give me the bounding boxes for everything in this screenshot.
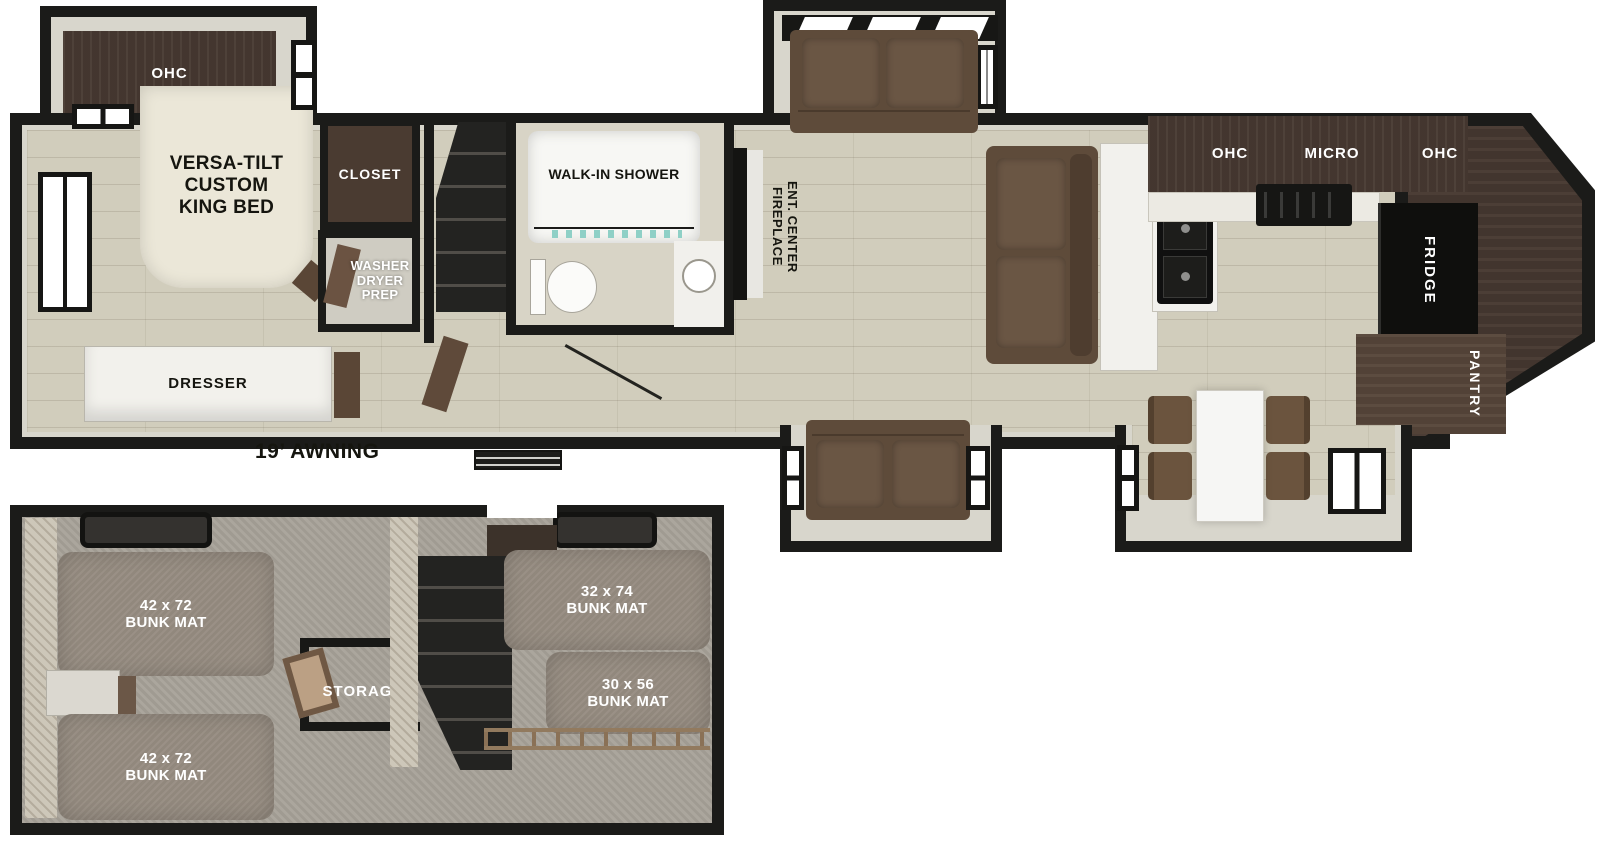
bunk-mat-top-left: 42 x 72 BUNK MAT — [58, 552, 274, 676]
kitchen-ohc-right-label: OHC — [1422, 145, 1458, 162]
sofa-cushion — [886, 38, 964, 108]
skylight — [553, 512, 657, 548]
bunk-mat-top-right-label: 32 x 74 BUNK MAT — [566, 583, 647, 618]
dinette-chair — [1266, 396, 1310, 444]
bath-sink — [682, 259, 716, 293]
sofa-cushion — [996, 256, 1066, 348]
pantry-label: PANTRY — [1467, 350, 1483, 418]
sofa-seat-seam — [798, 110, 970, 112]
sofa-bottom-slide — [806, 420, 970, 520]
sofa-cushion — [802, 38, 880, 108]
stove-grate — [1264, 192, 1344, 218]
awning-label-wrap: 19’ AWNING — [255, 440, 425, 466]
slideout-side-window — [976, 45, 998, 109]
closet-label: CLOSET — [339, 166, 402, 182]
dinette-chair — [1148, 396, 1192, 444]
toilet-bowl — [547, 261, 597, 313]
entry-steps — [474, 450, 562, 470]
bunk-nightstand-side — [118, 676, 136, 714]
shower-rod — [534, 227, 694, 229]
dinette-table — [1196, 390, 1264, 522]
sofa-cushion — [996, 158, 1066, 250]
dinette-chair — [1148, 452, 1192, 500]
king-bed-label: VERSA-TILT CUSTOM KING BED — [170, 153, 283, 219]
dresser-side-cabinet — [334, 352, 360, 418]
sofa-cushion — [816, 440, 884, 508]
awning-label: 19’ AWNING — [255, 440, 379, 463]
bottom-slide-left-window — [782, 446, 804, 510]
ent-center-fireplace — [733, 148, 747, 300]
closet: CLOSET — [320, 118, 420, 230]
sofa-cushion — [892, 440, 960, 508]
sink-drain — [1181, 224, 1190, 233]
washer-dryer-prep: WASHER DRYER PREP — [318, 230, 420, 332]
king-bed: VERSA-TILT CUSTOM KING BED — [140, 86, 313, 288]
bunk-stairwell-wall — [390, 517, 418, 767]
sofa-facing-left — [986, 146, 1098, 364]
toilet-tank — [530, 259, 546, 315]
bunk-top-wall-opening — [487, 505, 557, 518]
bunk-nightstand — [46, 670, 120, 716]
bedroom-top-window — [72, 104, 134, 129]
sink-drain — [1181, 272, 1190, 281]
bottom-slide-right-window — [966, 446, 990, 510]
bunk-mat-bottom-left: 42 x 72 BUNK MAT — [58, 714, 274, 820]
bunk-mat-top-left-label: 42 x 72 BUNK MAT — [125, 597, 206, 632]
bunk-ladder — [484, 728, 710, 750]
dresser: DRESSER — [84, 346, 332, 422]
bunk-mat-bottom-right: 30 x 56 BUNK MAT — [546, 652, 710, 734]
stove-cooktop — [1256, 184, 1352, 226]
shower-label: WALK-IN SHOWER — [549, 166, 680, 182]
skylight — [80, 512, 212, 548]
bedroom-ohc-label: OHC — [151, 65, 187, 82]
bedroom-slide-window — [291, 40, 317, 110]
sofa-top-slide — [790, 30, 978, 133]
fridge-label: FRIDGE — [1421, 236, 1438, 305]
ent-center-label: ENT. CENTER FIREPLACE — [769, 181, 799, 273]
kitchen-ohc-band: OHC MICRO OHC — [1148, 116, 1468, 192]
bedroom-wall — [424, 113, 434, 343]
sofa-seat-seam — [812, 434, 964, 436]
pantry: PANTRY — [1356, 334, 1506, 434]
dinette-left-window — [1117, 445, 1139, 511]
shower-curtain — [552, 230, 682, 238]
bunk-mat-top-right: 32 x 74 BUNK MAT — [504, 550, 710, 650]
rv-floorplan: OHC VERSA-TILT CUSTOM KING BED CLOSET WA… — [0, 0, 1600, 848]
bedroom-rear-window — [38, 172, 92, 312]
dinette-right-window — [1328, 448, 1386, 514]
kitchen-micro-label: MICRO — [1305, 145, 1360, 162]
kitchen-ohc-left-label: OHC — [1212, 145, 1248, 162]
sofa-back — [1070, 154, 1092, 356]
fridge: FRIDGE — [1378, 203, 1478, 337]
bathroom: WALK-IN SHOWER — [506, 113, 734, 335]
bunk-mat-bottom-right-label: 30 x 56 BUNK MAT — [587, 676, 668, 711]
dinette-chair — [1266, 452, 1310, 500]
walk-in-shower: WALK-IN SHOWER — [528, 131, 700, 243]
bunk-rear-wall-face — [25, 518, 57, 818]
dresser-label: DRESSER — [168, 375, 248, 392]
washer-dryer-label: WASHER DRYER PREP — [351, 259, 410, 304]
bunk-mat-bottom-left-label: 42 x 72 BUNK MAT — [125, 750, 206, 785]
